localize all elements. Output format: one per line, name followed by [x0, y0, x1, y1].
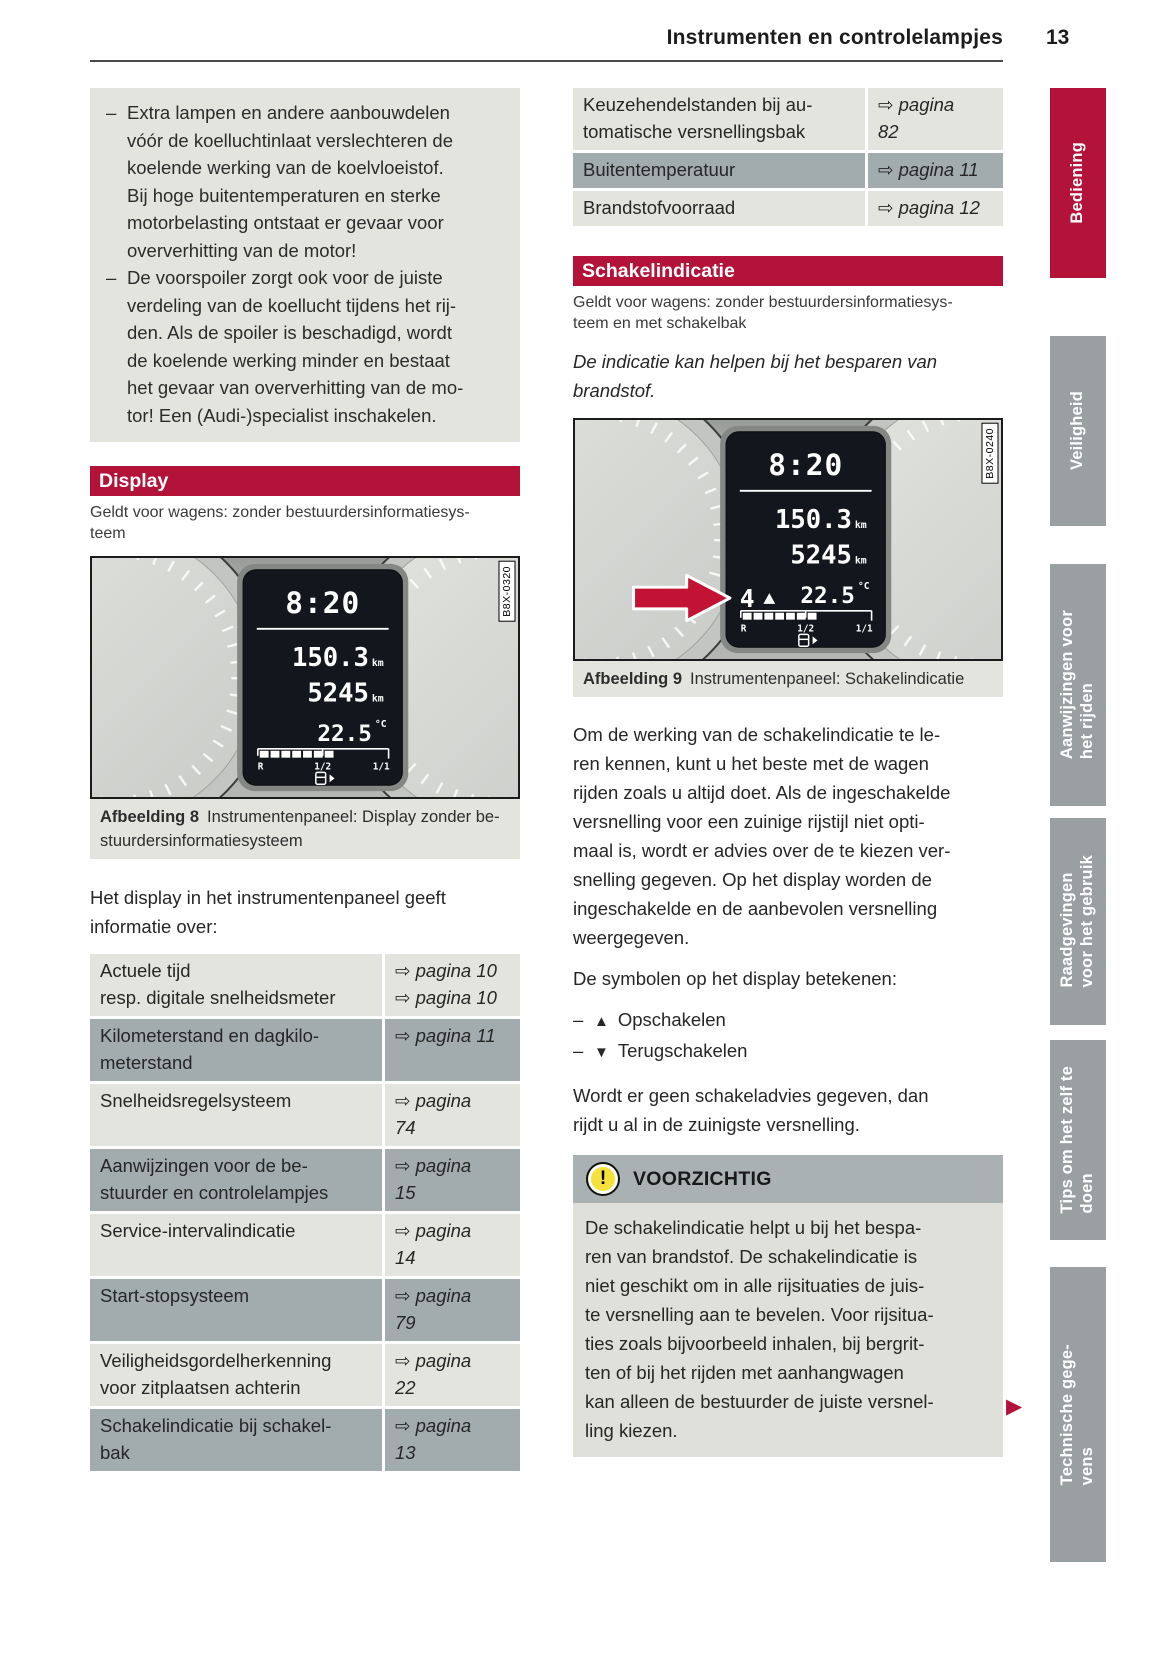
page-reference[interactable]: ⇨ pagina 14	[385, 1214, 520, 1276]
downshift-triangle-icon: ▼	[594, 1038, 609, 1067]
trip-unit: km	[855, 520, 867, 531]
applies-to-note: Geldt voor wagens: zonder bestuurdersinf…	[90, 502, 520, 544]
table-cell-label: Schakelindicatie bij schakel- bak	[90, 1409, 382, 1471]
odometer-unit: km	[372, 694, 384, 705]
trip-distance: 150.3	[775, 505, 852, 535]
table-cell-label: Snelheidsregelsysteem	[90, 1084, 382, 1146]
table-row: Brandstofvoorraad ⇨ pagina 12	[573, 191, 1003, 226]
lcd-display: 8:20 150.3 km 5245 km 4 22.5 °C	[720, 426, 891, 653]
table-row: Kilometerstand en dagkilo- meterstand ⇨ …	[90, 1019, 520, 1081]
page-reference[interactable]: ⇨ pagina 11	[868, 153, 1003, 188]
sidebar-tab-bediening[interactable]: Bediening	[1050, 88, 1106, 278]
fuel-reserve-label: R	[258, 761, 264, 772]
no-advice-paragraph: Wordt er geen schakeladvies gegeven, dan…	[573, 1081, 1003, 1139]
sidebar-tab-label: Bediening	[1068, 142, 1088, 224]
page-reference[interactable]: ⇨ pagina 11	[385, 1019, 520, 1081]
caution-box: ! VOORZICHTIG De schakelindicatie helpt …	[573, 1155, 1003, 1457]
trip-distance: 150.3	[292, 643, 369, 673]
page-title: Instrumenten en controlelampjes	[667, 26, 1003, 50]
outside-temperature: 22.5	[800, 583, 854, 609]
note-item: – De voorspoiler zorgt ook voor de juist…	[106, 264, 504, 429]
lcd-display: 8:20 150.3 km 5245 km 22.5 °C	[237, 564, 408, 791]
continues-arrow-icon: ▶	[1006, 1396, 1022, 1417]
bullet-dash: –	[573, 1005, 594, 1034]
table-cell-label: Kilometerstand en dagkilo- meterstand	[90, 1019, 382, 1081]
caution-header: ! VOORZICHTIG	[573, 1155, 1003, 1203]
note-item: – Extra lampen en andere aanbouwdelen vó…	[106, 99, 504, 264]
table-cell-label: Buitentemperatuur	[573, 153, 865, 188]
fuel-full-label: 1/1	[856, 623, 873, 634]
figure-8-caption-label: Afbeelding 8	[100, 808, 199, 826]
section-header-display: Display	[90, 466, 520, 496]
sidebar-tab-label: Technische gege- vens	[1058, 1344, 1098, 1485]
symbol-meaning: Opschakelen	[618, 1005, 726, 1034]
page-number: 13	[1046, 26, 1069, 50]
table-row: Schakelindicatie bij schakel- bak ⇨ pagi…	[90, 1409, 520, 1471]
applies-to-note: Geldt voor wagens: zonder bestuurdersinf…	[573, 292, 1003, 334]
symbols-intro: De symbolen op het display betekenen:	[573, 964, 1003, 993]
figure-code-label: B8X-0320	[499, 561, 516, 622]
manual-page: Instrumenten en controlelampjes 13 – Ext…	[0, 0, 1165, 1653]
odometer: 5245	[307, 679, 369, 709]
figure-code-label: B8X-0240	[982, 423, 999, 484]
page-reference[interactable]: ⇨ pagina 12	[868, 191, 1003, 226]
clock-readout: 8:20	[285, 586, 360, 620]
sidebar-tab-tips[interactable]: Tips om het zelf te doen	[1050, 1040, 1106, 1240]
clock-readout: 8:20	[768, 448, 843, 482]
caution-exclamation-icon: !	[586, 1162, 620, 1196]
page-reference[interactable]: ⇨ pagina 13	[385, 1409, 520, 1471]
table-row: Aanwijzingen voor de be- stuurder en con…	[90, 1149, 520, 1211]
symbol-item: – ▲ Opschakelen	[573, 1005, 1003, 1036]
temperature-unit: °C	[375, 719, 387, 730]
table-cell-label: Service-intervalindicatie	[90, 1214, 382, 1276]
lead-paragraph: De indicatie kan helpen bij het besparen…	[573, 347, 1003, 405]
table-cell-label: Start-stopsysteem	[90, 1279, 382, 1341]
fuel-full-label: 1/1	[373, 761, 390, 772]
odometer-unit: km	[855, 556, 867, 567]
odometer: 5245	[790, 541, 852, 571]
sidebar-tab-technische-gegevens[interactable]: Technische gege- vens	[1050, 1267, 1106, 1562]
sidebar-tab-label: Aanwijzingen voor het rijden	[1058, 610, 1098, 759]
page-reference[interactable]: ⇨ pagina 10 ⇨ pagina 10	[385, 954, 520, 1016]
table-row: Snelheidsregelsysteem ⇨ pagina 74	[90, 1084, 520, 1146]
instrument-cluster-graphic: 8:20 150.3 km 5245 km 4 22.5 °C	[575, 420, 1001, 659]
table-row: Actuele tijd resp. digitale snelheidsmet…	[90, 954, 520, 1016]
page-reference[interactable]: ⇨ pagina 74	[385, 1084, 520, 1146]
page-reference[interactable]: ⇨ pagina 82	[868, 88, 1003, 150]
note-box: – Extra lampen en andere aanbouwdelen vó…	[90, 88, 520, 442]
upshift-triangle-icon: ▲	[594, 1007, 609, 1036]
table-cell-label: Aanwijzingen voor de be- stuurder en con…	[90, 1149, 382, 1211]
sidebar-tab-label: Raadgevingen voor het gebruik	[1058, 855, 1098, 987]
fuel-half-label: 1/2	[314, 761, 331, 772]
sidebar-tab-veiligheid[interactable]: Veiligheid	[1050, 336, 1106, 526]
bullet-dash: –	[106, 264, 127, 429]
table-cell-label: Keuzehendelstanden bij au- tomatische ve…	[573, 88, 865, 150]
page-reference[interactable]: ⇨ pagina 15	[385, 1149, 520, 1211]
symbol-meaning: Terugschakelen	[618, 1036, 748, 1065]
note-text: Extra lampen en andere aanbouwdelen vóór…	[127, 99, 504, 264]
table-cell-label: Veiligheidsgordelherkenning voor zitplaa…	[90, 1344, 382, 1406]
header-rule	[90, 60, 1003, 62]
caution-title: VOORZICHTIG	[633, 1168, 772, 1191]
table-row: Service-intervalindicatie ⇨ pagina 14	[90, 1214, 520, 1276]
instrument-cluster-graphic: 8:20 150.3 km 5245 km 22.5 °C	[92, 558, 518, 797]
figure-9-caption: Afbeelding 9Instrumentenpaneel: Schakeli…	[573, 661, 1003, 697]
left-column: – Extra lampen en andere aanbouwdelen vó…	[90, 88, 520, 1474]
temperature-unit: °C	[858, 581, 870, 592]
table-cell-label: Brandstofvoorraad	[573, 191, 865, 226]
shift-indicator-paragraph: Om de werking van de schakelindicatie te…	[573, 720, 1003, 952]
figure-8-instrument-panel: 8:20 150.3 km 5245 km 22.5 °C	[90, 556, 520, 799]
right-column: Keuzehendelstanden bij au- tomatische ve…	[573, 88, 1003, 1457]
sidebar-tab-label: Tips om het zelf te doen	[1058, 1066, 1098, 1213]
sidebar-tab-label: Veiligheid	[1068, 391, 1088, 470]
bullet-dash: –	[573, 1036, 594, 1065]
table-row: Keuzehendelstanden bij au- tomatische ve…	[573, 88, 1003, 150]
symbols-list: – ▲ Opschakelen – ▼ Terugschakelen	[573, 1005, 1003, 1067]
display-intro-paragraph: Het display in het instrumentenpaneel ge…	[90, 883, 520, 941]
gauge-info-table: Keuzehendelstanden bij au- tomatische ve…	[573, 88, 1003, 226]
fuel-half-label: 1/2	[797, 623, 814, 634]
table-row: Start-stopsysteem ⇨ pagina 79	[90, 1279, 520, 1341]
section-header-schakelindicatie: Schakelindicatie	[573, 256, 1003, 286]
figure-8-caption: Afbeelding 8Instrumentenpaneel: Display …	[90, 799, 520, 859]
figure-9-caption-label: Afbeelding 9	[583, 670, 682, 688]
table-cell-label: Actuele tijd resp. digitale snelheidsmet…	[90, 954, 382, 1016]
fuel-reserve-label: R	[741, 623, 747, 634]
gear-number: 4	[740, 584, 755, 613]
figure-9-caption-text: Instrumentenpaneel: Schakelindicatie	[690, 670, 964, 688]
bullet-dash: –	[106, 99, 127, 264]
table-row: Veiligheidsgordelherkenning voor zitplaa…	[90, 1344, 520, 1406]
outside-temperature: 22.5	[317, 721, 371, 747]
page-reference[interactable]: ⇨ pagina 22	[385, 1344, 520, 1406]
sidebar-tab-aanwijzingen[interactable]: Aanwijzingen voor het rijden	[1050, 564, 1106, 806]
caution-body: De schakelindicatie helpt u bij het besp…	[573, 1203, 1003, 1457]
figure-9-instrument-panel: 8:20 150.3 km 5245 km 4 22.5 °C	[573, 418, 1003, 661]
trip-unit: km	[372, 658, 384, 669]
table-row: Buitentemperatuur ⇨ pagina 11	[573, 153, 1003, 188]
note-text: De voorspoiler zorgt ook voor de juiste …	[127, 264, 504, 429]
symbol-item: – ▼ Terugschakelen	[573, 1036, 1003, 1067]
display-info-table: Actuele tijd resp. digitale snelheidsmet…	[90, 954, 520, 1471]
sidebar-tab-raadgevingen[interactable]: Raadgevingen voor het gebruik	[1050, 818, 1106, 1025]
page-reference[interactable]: ⇨ pagina 79	[385, 1279, 520, 1341]
